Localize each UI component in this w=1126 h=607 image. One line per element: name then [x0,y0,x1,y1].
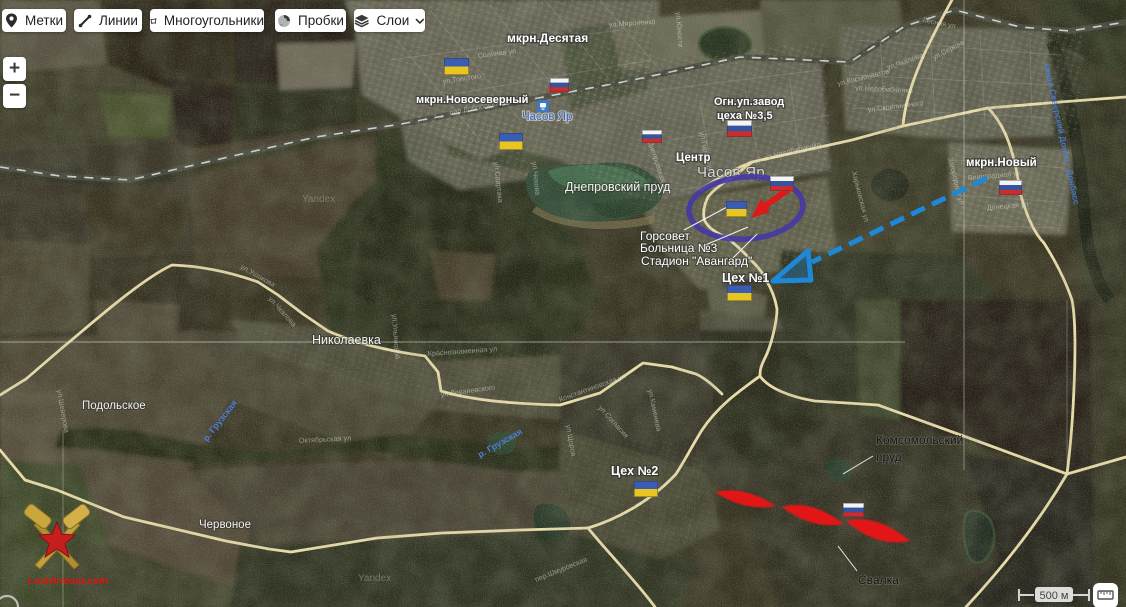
svg-text:Червоное: Червоное [199,519,251,531]
svg-text:Огн.уп.завод: Огн.уп.завод [714,96,784,108]
svg-text:Комсомольский: Комсомольский [876,433,963,447]
svg-text:Стадион "Авангард": Стадион "Авангард" [641,254,752,268]
svg-text:500 м: 500 м [1040,590,1069,602]
svg-text:Днепровский пруд: Днепровский пруд [565,180,671,194]
svg-text:Цех №2: Цех №2 [611,464,658,478]
svg-text:Больница №3: Больница №3 [640,241,718,255]
svg-text:Подольское: Подольское [82,400,146,412]
svg-text:Николаевка: Николаевка [312,333,381,347]
svg-text:пруд: пруд [876,450,902,464]
svg-text:LostArmour.com: LostArmour.com [28,576,108,587]
svg-text:Цех №1: Цех №1 [722,271,769,285]
svg-text:Yandex: Yandex [302,194,335,205]
svg-text:мкрн.Десятая: мкрн.Десятая [507,31,588,45]
svg-text:Центр: Центр [676,152,711,164]
svg-text:Yandex: Yandex [358,573,391,584]
svg-text:мкрн.Новый: мкрн.Новый [966,157,1037,169]
svg-text:мкрн.Новосеверный: мкрн.Новосеверный [416,94,528,106]
svg-text:Свалка: Свалка [858,573,899,587]
svg-text:Часов Яр: Часов Яр [522,111,572,123]
